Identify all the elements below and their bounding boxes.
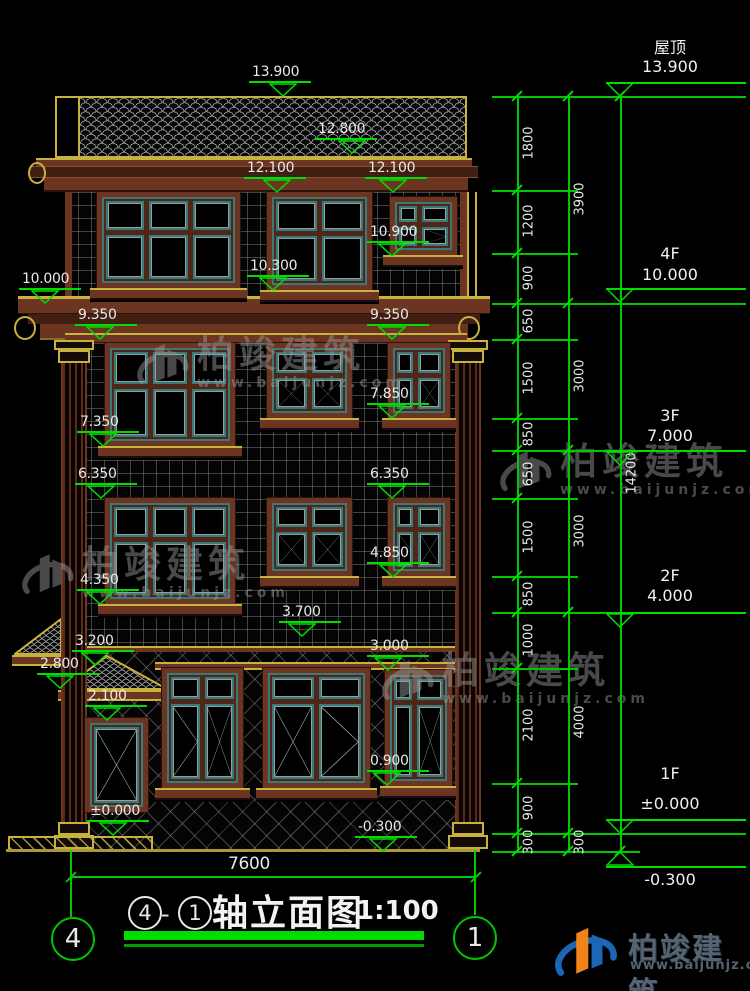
floor-marker-value: ±0.000 — [615, 794, 725, 813]
elevation-marker-triangle — [378, 325, 406, 339]
width-dim-line — [70, 876, 476, 878]
dim-chain-label: 1500 — [522, 520, 537, 553]
title-underline-thick — [124, 931, 424, 940]
elevation-marker-triangle — [338, 139, 366, 153]
elevation-marker-value: 10.000 — [22, 271, 69, 287]
elevation-marker-value: 4.850 — [370, 545, 409, 561]
title-axis-from: 4 — [128, 896, 162, 930]
dim-chain-label: 1000 — [522, 623, 537, 656]
dim-chain-line — [568, 96, 570, 851]
title-axis-to: 1 — [178, 896, 212, 930]
dim-chain-label: 900 — [522, 796, 537, 821]
elevation-marker-triangle — [81, 651, 109, 665]
title-scale: 1:100 — [356, 896, 439, 926]
elevation-marker-triangle — [263, 178, 291, 192]
elevation-marker-value: 7.850 — [370, 386, 409, 402]
dim-chain-label: 2100 — [522, 708, 537, 741]
extension-line — [492, 303, 746, 305]
elevation-marker-triangle — [378, 242, 406, 256]
elevation-marker-triangle — [374, 656, 402, 670]
floor-marker-bar — [606, 866, 746, 868]
elevation-marker-triangle — [288, 622, 316, 636]
elevation-marker-value: 6.350 — [370, 466, 409, 482]
elevation-marker-triangle — [269, 82, 297, 96]
elevation-marker-triangle — [87, 484, 115, 498]
dim-chain-label: 3000 — [573, 514, 588, 547]
elevation-marker-value: 3.000 — [370, 638, 409, 654]
elevation-marker-triangle — [379, 563, 407, 577]
width-dim-value: 7600 — [228, 854, 270, 874]
floor-marker-value: 7.000 — [615, 426, 725, 445]
elevation-marker-value: 9.350 — [370, 307, 409, 323]
elevation-marker-triangle — [379, 178, 407, 192]
dim-chain-label: 1200 — [522, 204, 537, 237]
dim-chain-label: 850 — [522, 582, 537, 607]
dim-chain-label: 3000 — [573, 359, 588, 392]
dim-chain-label: 300 — [522, 830, 537, 855]
axis-bubble-4: 4 — [51, 917, 95, 961]
title-underline-thin — [124, 944, 424, 947]
axis-line-right — [474, 851, 476, 915]
elevation-marker-value: 12.100 — [247, 160, 294, 176]
dim-chain-label: 650 — [522, 462, 537, 487]
elevation-marker-value: 13.900 — [252, 64, 299, 80]
title-dash: - — [161, 900, 170, 928]
dim-chain-label: 1800 — [522, 126, 537, 159]
floor-marker-label: 2F — [615, 566, 725, 585]
floor-marker-value: -0.300 — [615, 870, 725, 889]
extension-line — [492, 190, 578, 192]
dim-chain-label: 900 — [522, 266, 537, 291]
elevation-marker-value: 4.350 — [80, 572, 119, 588]
elevation-marker-triangle — [86, 325, 114, 339]
dim-chain-line — [517, 96, 519, 851]
extension-line — [492, 783, 578, 785]
elevation-marker-triangle — [31, 289, 59, 303]
extension-line — [492, 418, 578, 420]
elevation-marker-triangle — [378, 404, 406, 418]
elevation-marker-value: 3.700 — [282, 604, 321, 620]
elevation-marker-triangle — [89, 432, 117, 446]
extension-line — [492, 498, 578, 500]
elevation-marker-triangle — [259, 276, 287, 290]
axis-bubble-1: 1 — [453, 916, 497, 960]
elevation-marker-value: 2.100 — [88, 688, 127, 704]
elevation-marker-value: 10.900 — [370, 224, 417, 240]
floor-marker-triangle — [606, 851, 634, 866]
extension-line — [492, 668, 578, 670]
dim-chain-label: 1500 — [522, 361, 537, 394]
dim-chain-label: 4000 — [573, 705, 588, 738]
elevation-marker-triangle — [378, 484, 406, 498]
dim-chain-label: 3900 — [573, 182, 588, 215]
floor-marker-value: 10.000 — [615, 265, 725, 284]
extension-line — [492, 253, 578, 255]
building-logo-icon — [550, 918, 620, 991]
elevation-marker-triangle — [86, 590, 114, 604]
axis-line-left — [70, 851, 72, 917]
floor-marker-triangle — [606, 288, 634, 303]
floor-marker-triangle — [606, 82, 634, 97]
elevation-marker-value: 7.350 — [80, 414, 119, 430]
floor-marker-label: 屋顶 — [615, 34, 725, 58]
elevation-marker-value: 3.200 — [75, 633, 114, 649]
elevation-marker-value: 2.800 — [40, 656, 79, 672]
dim-chain-line — [620, 96, 622, 851]
elevation-marker-value: 9.350 — [78, 307, 117, 323]
cad-elevation-drawing: 柏竣建筑www.baijunjz.com柏竣建筑www.baijunjz.com… — [0, 0, 750, 991]
elevation-marker-triangle — [373, 771, 401, 785]
elevation-marker-triangle — [46, 674, 74, 688]
elevation-marker-triangle — [93, 706, 121, 720]
floor-marker-value: 4.000 — [615, 586, 725, 605]
floor-marker-label: 4F — [615, 244, 725, 263]
dim-chain-label: 300 — [573, 830, 588, 855]
elevation-marker-value: ±0.000 — [90, 803, 140, 819]
elevation-marker-value: -0.300 — [358, 819, 401, 835]
extension-line — [492, 576, 578, 578]
elevation-marker-triangle — [369, 837, 397, 851]
title-text: 轴立面图 — [212, 884, 364, 936]
floor-marker-triangle — [606, 819, 634, 834]
dim-chain-label: 650 — [522, 309, 537, 334]
floor-marker-triangle — [606, 451, 634, 466]
floor-marker-value: 13.900 — [615, 57, 725, 76]
elevation-marker-value: 10.300 — [250, 258, 297, 274]
elevation-marker-value: 6.350 — [78, 466, 117, 482]
elevation-marker-value: 12.100 — [368, 160, 415, 176]
dim-chain-label: 850 — [522, 422, 537, 447]
elevation-marker-value: 12.800 — [318, 121, 365, 137]
floor-marker-label: 1F — [615, 764, 725, 783]
dimension-layer: 1800120090065015008506501500850100021009… — [0, 0, 750, 991]
floor-marker-label: 3F — [615, 406, 725, 425]
footer-logo-url: www.baijunjz.com — [630, 958, 750, 973]
elevation-marker-value: 0.900 — [370, 753, 409, 769]
floor-marker-triangle — [606, 613, 634, 628]
elevation-marker-triangle — [99, 821, 127, 835]
extension-line — [492, 339, 578, 341]
